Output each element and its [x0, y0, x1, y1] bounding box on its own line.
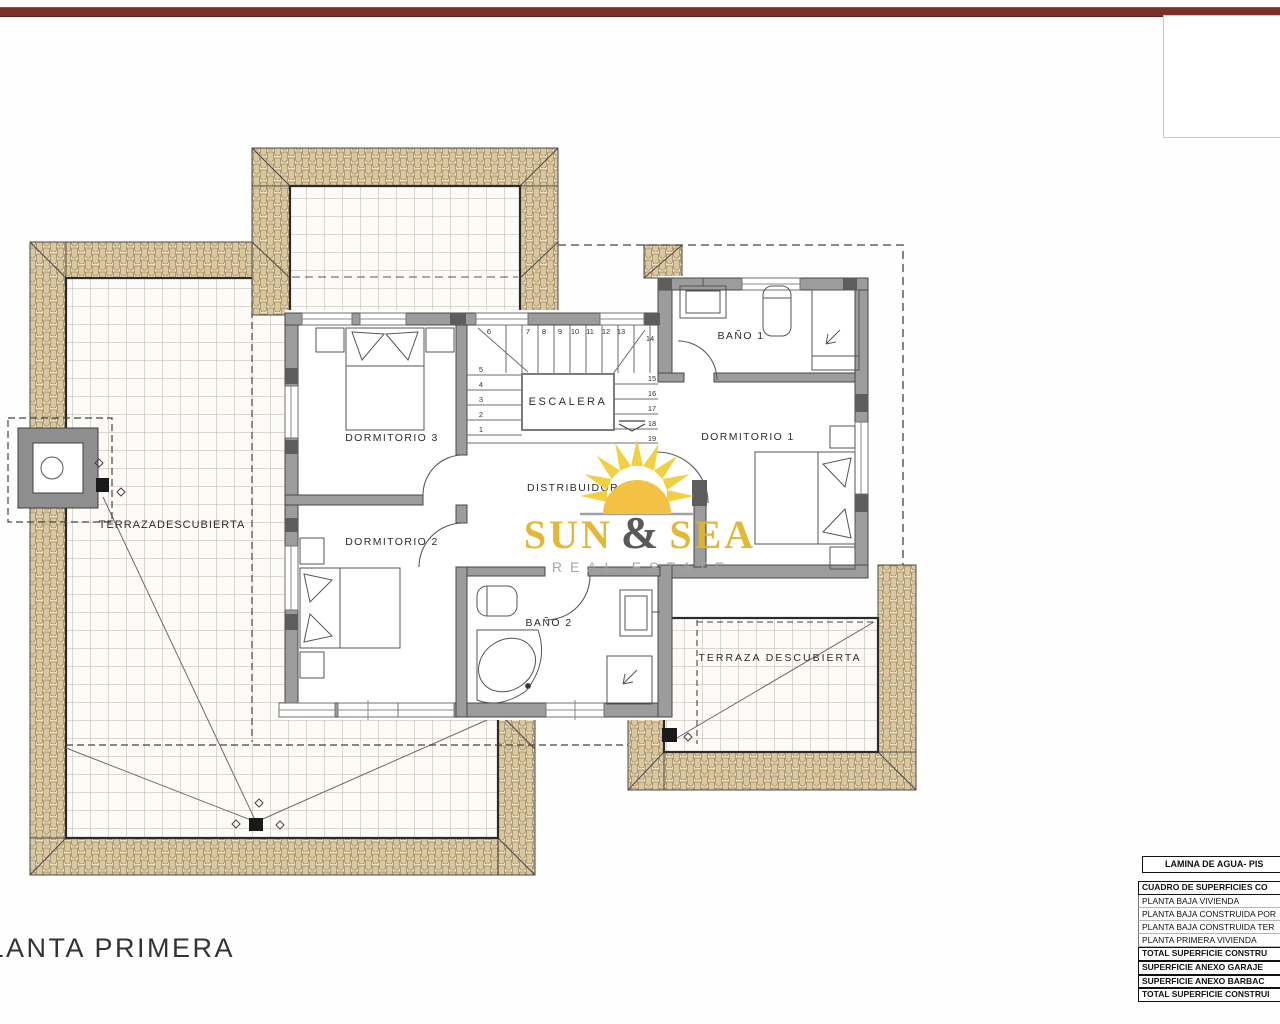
- label-dormitorio2: DORMITORIO 2: [345, 536, 439, 548]
- label-bano1: BAÑO 1: [718, 329, 765, 342]
- svg-text:18: 18: [648, 419, 656, 428]
- svg-text:9: 9: [558, 327, 562, 336]
- svg-text:6: 6: [487, 327, 491, 336]
- table-row: TOTAL SUPERFICIE CONSTRU: [1138, 947, 1280, 961]
- svg-text:17: 17: [648, 404, 656, 413]
- label-escalera: ESCALERA: [529, 396, 608, 408]
- label-terraza-izquierda: TERRAZADESCUBIERTA: [99, 519, 246, 531]
- label-dormitorio1: DORMITORIO 1: [701, 431, 795, 443]
- plan-title: PLANTA PRIMERA: [0, 933, 235, 964]
- svg-text:10: 10: [571, 327, 579, 336]
- table-header: LAMINA DE AGUA- PIS: [1142, 856, 1280, 873]
- table-rows: CUADRO DE SUPERFICIES CO PLANTA BAJA VIV…: [1138, 881, 1280, 1002]
- svg-text:2: 2: [479, 410, 483, 419]
- svg-text:12: 12: [602, 327, 610, 336]
- table-row: CUADRO DE SUPERFICIES CO: [1138, 881, 1280, 895]
- svg-text:11: 11: [586, 327, 594, 336]
- svg-text:5: 5: [479, 365, 483, 374]
- table-row: PLANTA BAJA CONSTRUIDA POR: [1138, 908, 1280, 921]
- table-row: PLANTA BAJA CONSTRUIDA TER: [1138, 921, 1280, 934]
- drain: [249, 818, 263, 831]
- table-row: PLANTA BAJA VIVIENDA: [1138, 895, 1280, 908]
- table-row: TOTAL SUPERFICIE CONSTRUI: [1138, 988, 1280, 1002]
- svg-text:19: 19: [648, 434, 656, 443]
- logo-wordmark: SUN&SEA: [524, 508, 756, 558]
- table-row: SUPERFICIE ANEXO BARBAC: [1138, 975, 1280, 989]
- page: 6 7 8 9 10 11 12 13 14 5 4 3 2 1 15 16 1…: [0, 0, 1280, 1024]
- svg-text:3: 3: [479, 395, 483, 404]
- table-row: SUPERFICIE ANEXO GARAJE: [1138, 961, 1280, 975]
- top-terrace: [252, 148, 558, 315]
- floor-plan: 6 7 8 9 10 11 12 13 14 5 4 3 2 1 15 16 1…: [0, 0, 1280, 1024]
- svg-text:4: 4: [479, 380, 483, 389]
- logo-tagline: REAL ESTATE: [552, 559, 732, 575]
- svg-text:7: 7: [526, 327, 530, 336]
- svg-text:14: 14: [646, 334, 654, 343]
- label-bano2: BAÑO 2: [526, 616, 573, 629]
- svg-text:1: 1: [479, 425, 483, 434]
- label-terraza-derecha: TERRAZA DESCUBIERTA: [698, 652, 861, 664]
- svg-text:16: 16: [648, 389, 656, 398]
- svg-text:15: 15: [648, 374, 656, 383]
- svg-text:13: 13: [617, 327, 625, 336]
- label-dormitorio3: DORMITORIO 3: [345, 432, 439, 444]
- drain: [662, 728, 677, 742]
- svg-text:8: 8: [542, 327, 546, 336]
- table-row: PLANTA PRIMERA VIVIENDA: [1138, 934, 1280, 947]
- roof-patch: [644, 245, 682, 278]
